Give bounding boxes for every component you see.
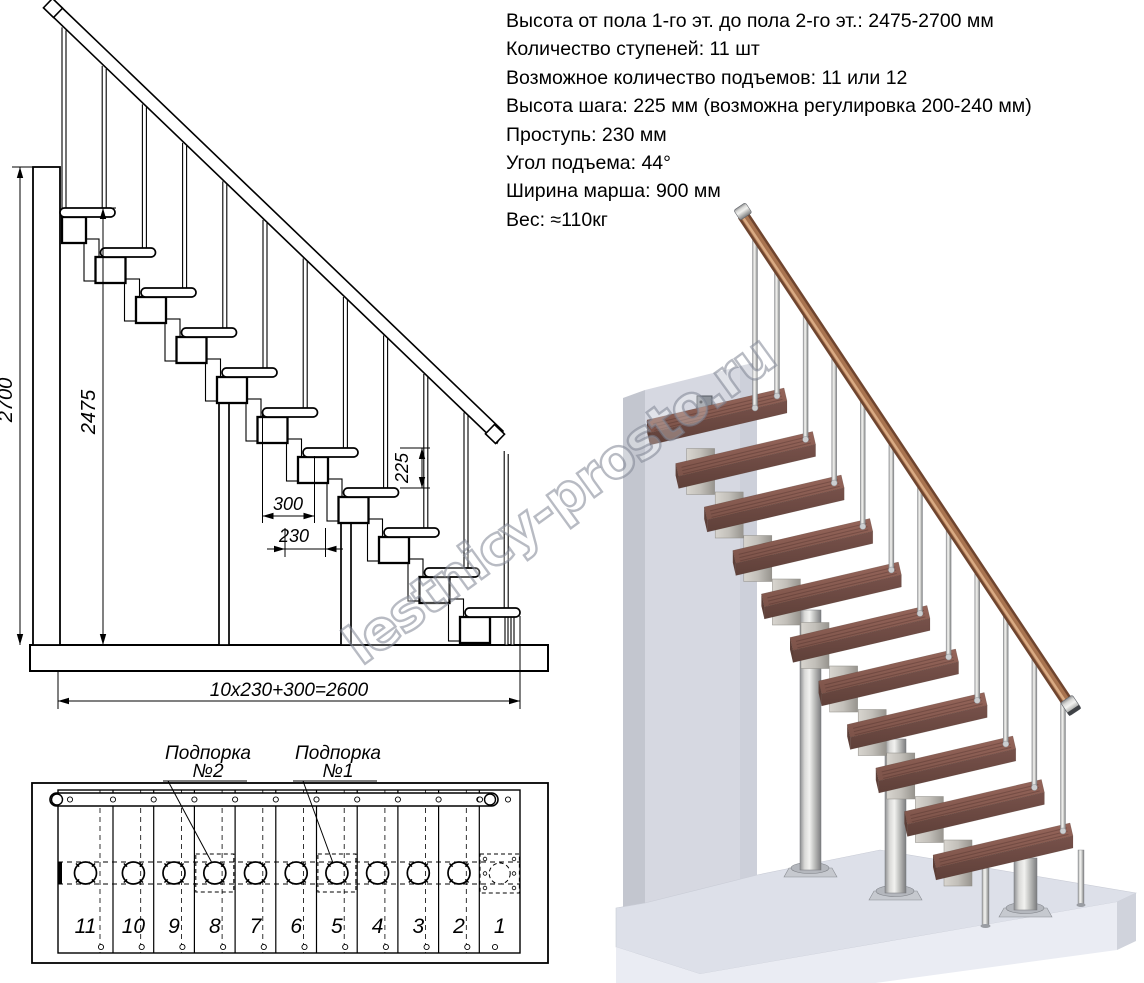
spec-line: Высота от пола 1-го эт. до пола 2-го эт.… <box>506 7 1142 35</box>
step-number-1: 1 <box>494 915 506 938</box>
screw-icon <box>180 944 185 949</box>
screw-icon <box>436 797 441 802</box>
baluster-foot <box>831 480 837 486</box>
step-module <box>298 457 328 483</box>
dim-arrow <box>58 698 69 704</box>
step-number-3: 3 <box>412 915 424 938</box>
baluster-foot <box>803 437 809 443</box>
screw-icon <box>424 944 429 949</box>
wall-edge-shade <box>740 362 757 885</box>
step-tread <box>344 488 399 497</box>
screw-icon <box>98 944 103 949</box>
dim-arrow <box>326 546 337 552</box>
screw-icon <box>395 797 400 802</box>
entry-column <box>1014 858 1037 910</box>
dim-arrow <box>17 634 23 645</box>
baluster-foot <box>888 567 894 573</box>
dim-arrow <box>263 513 274 519</box>
baluster-foot <box>860 524 866 530</box>
render-geometry <box>616 203 1136 983</box>
wall-attach-mark <box>58 862 62 884</box>
support-column-1 <box>341 523 351 645</box>
plan-view-drawing: Подпорка №2 Подпорка №1 11 10 9 8 7 6 5 … <box>20 735 570 983</box>
screw-icon <box>192 797 197 802</box>
spec-line: Возможное количество подъемов: 11 или 12 <box>506 64 1142 92</box>
step-tread <box>303 448 358 457</box>
baluster-foot <box>774 393 780 399</box>
baluster <box>1061 695 1066 831</box>
render-3d <box>600 190 1144 983</box>
step-number-8: 8 <box>209 915 221 938</box>
baluster <box>946 524 951 657</box>
screw-icon <box>355 797 360 802</box>
baluster-foot <box>1031 785 1037 791</box>
dim-step-run: 230 <box>278 526 309 546</box>
step-number-4: 4 <box>372 915 384 938</box>
wall-side-face <box>623 390 645 916</box>
screw-icon <box>261 944 266 949</box>
step-module <box>339 497 369 523</box>
entry-leg <box>505 617 508 645</box>
handrail-end <box>52 794 63 805</box>
screw-icon <box>221 944 226 949</box>
handrail-end <box>485 794 496 805</box>
step-tread <box>384 528 439 537</box>
baluster <box>832 352 837 483</box>
step-number-7: 7 <box>250 915 263 938</box>
baluster <box>753 233 758 408</box>
support1-label-line2: №1 <box>322 761 353 782</box>
baluster-foot <box>974 698 980 704</box>
step-tread <box>222 368 277 377</box>
entry-leg <box>982 868 989 926</box>
step-module <box>96 257 126 283</box>
floor-section <box>30 645 548 671</box>
dim-total-height: 2700 <box>0 378 17 424</box>
screw-icon <box>314 797 319 802</box>
spec-line: Высота шага: 225 мм (возможна регулировк… <box>506 92 1142 120</box>
baluster-foot <box>946 654 952 660</box>
screw-icon <box>477 797 482 802</box>
entry-leg <box>511 617 514 645</box>
step-tread <box>425 568 480 577</box>
screw-icon <box>700 401 703 404</box>
step-module <box>217 377 247 403</box>
screw-icon <box>302 944 307 949</box>
screw-icon <box>233 797 238 802</box>
step-tread <box>182 328 237 337</box>
step-module <box>62 217 86 243</box>
dim-arrow <box>509 698 520 704</box>
baluster-foot <box>1003 741 1009 747</box>
baluster <box>975 567 980 701</box>
wall-section <box>33 167 60 645</box>
leg-foot <box>981 924 991 928</box>
page: 2700 2475 225 300 230 10x230+300=2600 Вы… <box>0 0 1144 983</box>
screw-icon <box>492 944 497 949</box>
dim-stair-height: 2475 <box>78 389 100 435</box>
screw-icon <box>110 797 115 802</box>
dim-tread-depth: 300 <box>273 494 303 514</box>
step-tread <box>465 608 520 617</box>
side-view-drawing: 2700 2475 225 300 230 10x230+300=2600 <box>0 0 570 720</box>
spec-line: Проступь: 230 мм <box>506 121 1142 149</box>
baluster-foot <box>917 611 923 617</box>
step-module <box>136 297 166 323</box>
dim-arrow <box>304 513 315 519</box>
baluster <box>1003 610 1008 744</box>
baluster-foot <box>752 405 758 411</box>
screw-icon <box>465 944 470 949</box>
screw-icon <box>383 944 388 949</box>
step-number-9: 9 <box>168 915 180 938</box>
support2-label-line2: №2 <box>192 761 224 782</box>
handrail-profile <box>49 1 503 443</box>
dim-riser: 225 <box>392 452 412 484</box>
screw-icon <box>505 797 510 802</box>
step-module <box>420 577 450 603</box>
step-number-10: 10 <box>122 915 146 938</box>
baluster <box>775 266 780 396</box>
step-tread <box>101 248 156 257</box>
screw-icon <box>343 944 348 949</box>
step-tread <box>263 408 318 417</box>
support-column-2 <box>219 403 229 645</box>
screw-icon <box>67 797 72 802</box>
baluster <box>860 395 865 527</box>
baluster-foot <box>1060 828 1066 834</box>
step-module <box>460 617 490 643</box>
step-number-6: 6 <box>290 915 302 938</box>
baluster <box>1032 653 1037 788</box>
side-view-geometry <box>12 0 548 709</box>
step-module <box>379 537 409 563</box>
baluster <box>803 309 808 440</box>
step-number-11: 11 <box>75 915 97 938</box>
spec-line: Количество ступеней: 11 шт <box>506 35 1142 63</box>
floor-side-face <box>1117 893 1136 950</box>
dim-arrow <box>100 634 106 645</box>
dim-arrow <box>17 167 23 178</box>
step-number-5: 5 <box>331 915 343 938</box>
baluster <box>918 481 923 614</box>
spec-line: Угол подъема: 44° <box>506 149 1142 177</box>
step-tread <box>141 288 196 297</box>
dim-arrow <box>274 546 285 552</box>
step-number-2: 2 <box>452 915 465 938</box>
entry-leg <box>1078 850 1084 905</box>
screw-icon <box>273 797 278 802</box>
screw-icon <box>151 797 156 802</box>
baluster <box>889 438 894 570</box>
step-tread <box>60 208 115 217</box>
step-module <box>177 337 207 363</box>
leg-foot <box>1077 903 1086 907</box>
dim-total-run: 10x230+300=2600 <box>210 680 369 701</box>
screw-icon <box>139 944 144 949</box>
